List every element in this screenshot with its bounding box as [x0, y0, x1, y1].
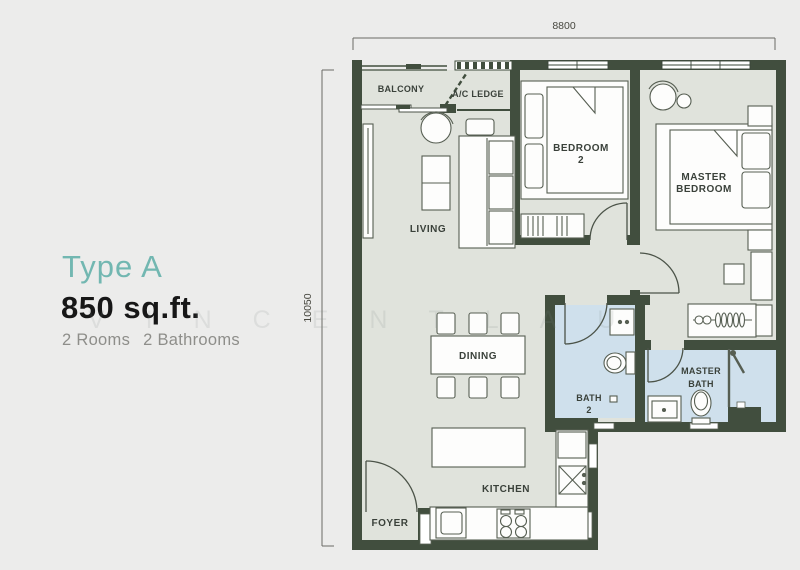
bedside-table: [748, 230, 772, 250]
bed2: [521, 81, 628, 199]
label-master-bedroom-2: BEDROOM: [676, 184, 732, 195]
toilet-master: [691, 390, 711, 424]
dining-chair: [469, 313, 487, 334]
floor-plan-drawing: BALCONY A/C LEDGE LIVING BEDROOM 2 MASTE…: [0, 0, 800, 570]
label-master-bath-1: MASTER: [681, 366, 721, 376]
sofa: [459, 136, 515, 248]
kitchen-island: [432, 428, 525, 467]
washer: [558, 432, 586, 458]
tv-unit-master: [724, 264, 744, 284]
floor-plan-page: Type A 850 sq.ft. 2 Rooms 2 Bathrooms: [0, 0, 800, 570]
label-bedroom2-2: 2: [578, 155, 584, 166]
dresser-master: [751, 252, 772, 300]
label-bath2-1: BATH: [576, 393, 602, 403]
dining-chair: [501, 313, 519, 334]
kitchen-appliance: [436, 508, 466, 538]
dining-chair: [469, 377, 487, 398]
label-balcony: BALCONY: [378, 84, 425, 94]
wardrobe: [688, 304, 772, 337]
bedside-table: [748, 106, 772, 126]
label-dining: DINING: [459, 351, 497, 362]
kitchen-sink: [559, 466, 586, 494]
label-bath2-2: 2: [586, 405, 591, 415]
dimension-height-label: 10050: [302, 293, 314, 322]
side-table: [466, 119, 494, 135]
dining-chair: [437, 313, 455, 334]
label-master-bedroom-1: MASTER: [681, 172, 727, 183]
label-master-bath-2: BATH: [688, 379, 714, 389]
label-kitchen: KITCHEN: [482, 484, 530, 495]
toilet-bath2: [604, 352, 635, 374]
vanity-master: [648, 396, 681, 422]
door-stop: [610, 396, 617, 402]
fan: [421, 113, 451, 143]
dining-chair: [437, 377, 455, 398]
dimension-width-label: 8800: [552, 20, 576, 32]
stove: [497, 509, 530, 538]
dining-chair: [501, 377, 519, 398]
label-living: LIVING: [410, 224, 446, 235]
label-foyer: FOYER: [372, 518, 409, 529]
label-ac-ledge: A/C LEDGE: [452, 89, 504, 99]
balcony-railing: [360, 64, 447, 70]
label-bedroom2-1: BEDROOM: [553, 143, 609, 154]
dresser2: [521, 214, 584, 238]
stool-large: [650, 84, 676, 110]
stool-small: [677, 94, 691, 108]
